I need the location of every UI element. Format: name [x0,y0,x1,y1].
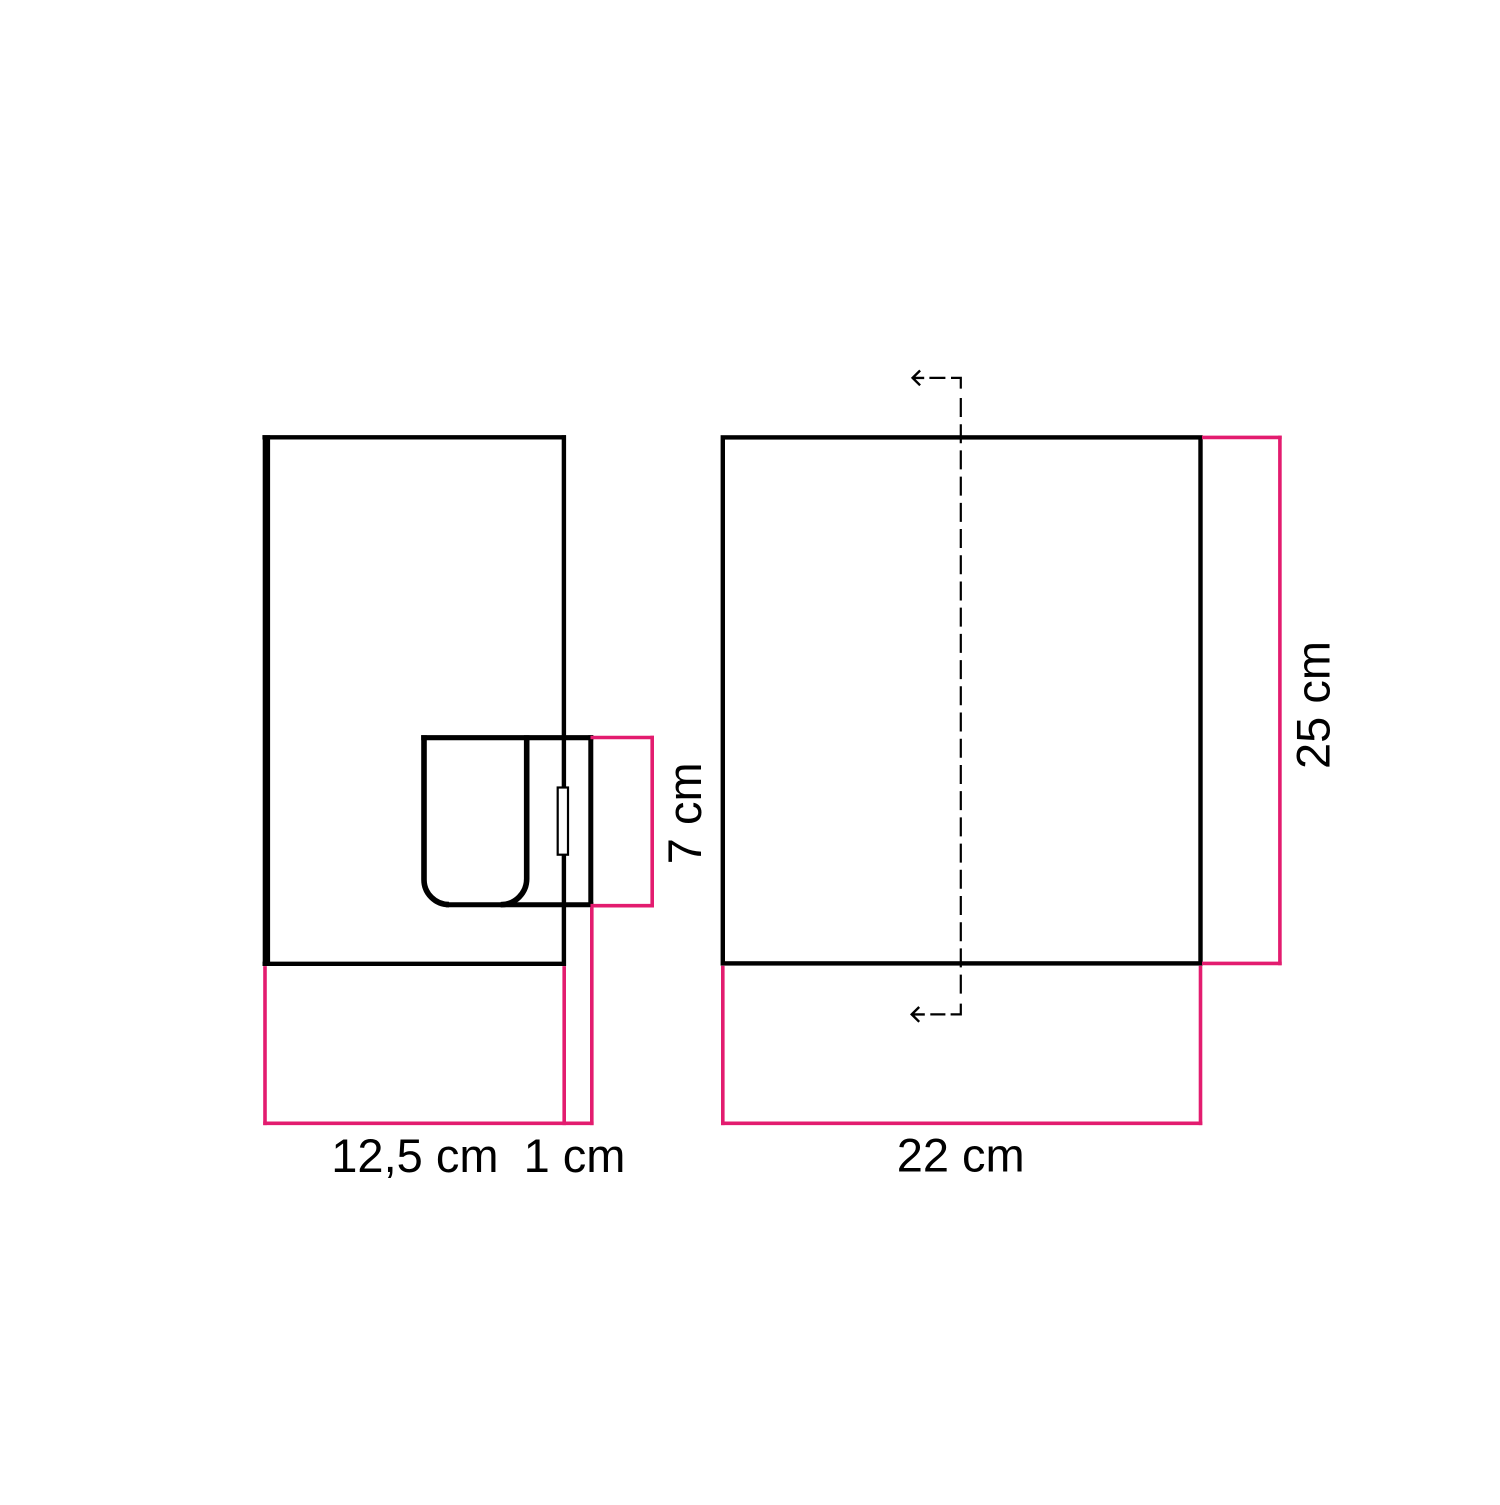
svg-text:12,5 cm: 12,5 cm [331,1129,498,1182]
svg-text:25 cm: 25 cm [1287,641,1340,769]
svg-text:7 cm: 7 cm [658,762,711,864]
svg-text:22 cm: 22 cm [897,1129,1025,1182]
svg-text:1 cm: 1 cm [524,1129,626,1182]
